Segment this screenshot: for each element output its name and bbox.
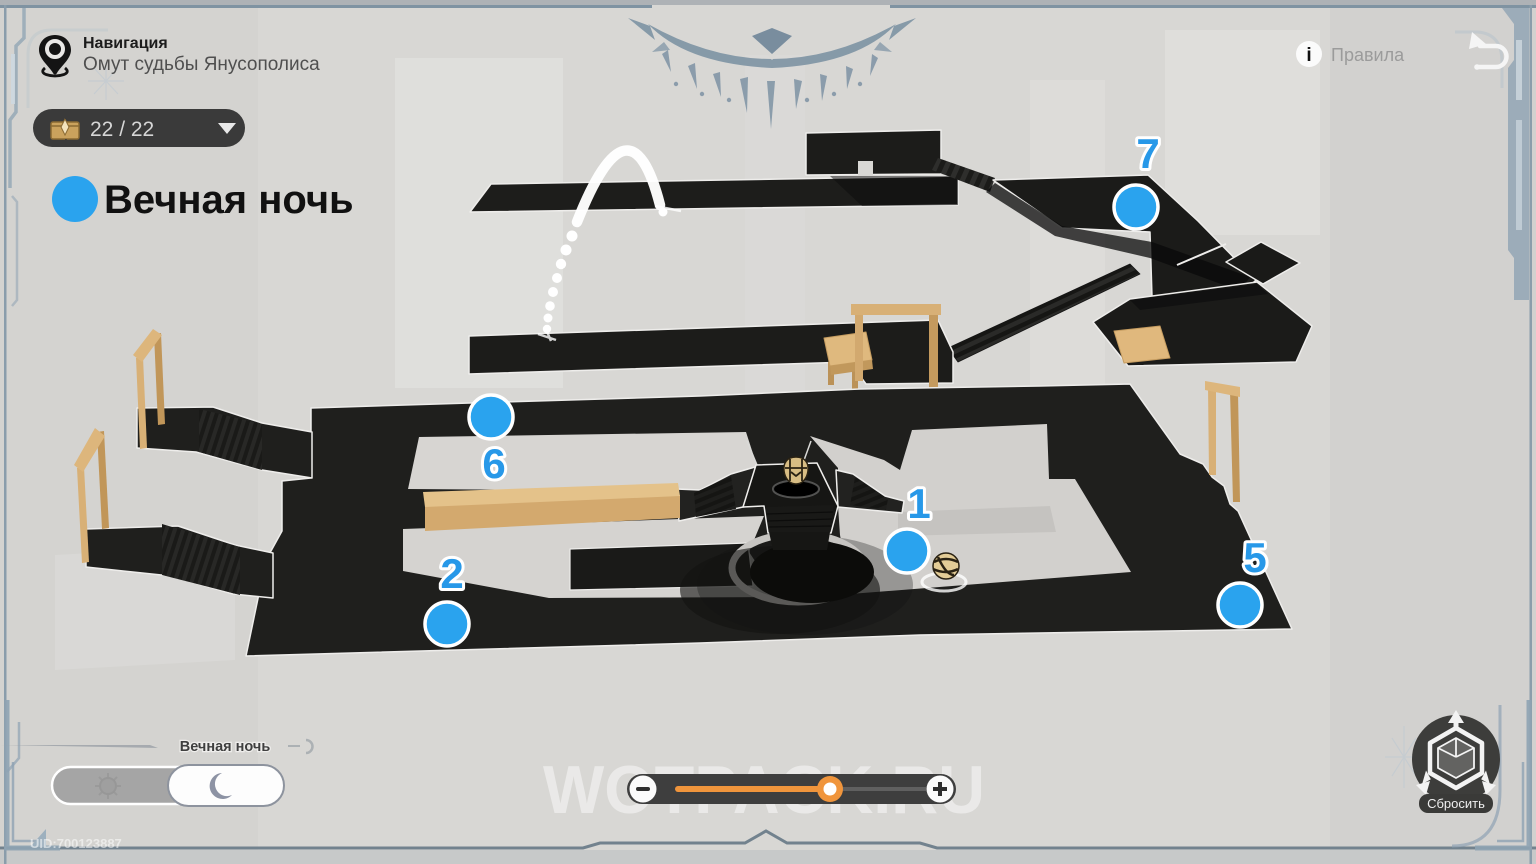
svg-text:Омут судьбы Янусополиса: Омут судьбы Янусополиса <box>83 54 320 75</box>
svg-text:1: 1 <box>907 480 930 527</box>
svg-text:i: i <box>1306 45 1311 66</box>
svg-text:Сбросить: Сбросить <box>1427 796 1485 811</box>
svg-text:Вечная ночь: Вечная ночь <box>180 739 271 755</box>
svg-text:7: 7 <box>1136 130 1159 177</box>
svg-text:Вечная ночь: Вечная ночь <box>104 178 354 222</box>
svg-text:2: 2 <box>440 550 463 597</box>
svg-text:6: 6 <box>482 440 505 487</box>
svg-text:5: 5 <box>1243 534 1266 581</box>
svg-text:Правила: Правила <box>1331 45 1405 65</box>
svg-text:UID:700123887: UID:700123887 <box>30 836 122 851</box>
svg-text:22 / 22: 22 / 22 <box>90 118 154 141</box>
svg-text:Навигация: Навигация <box>83 35 168 52</box>
